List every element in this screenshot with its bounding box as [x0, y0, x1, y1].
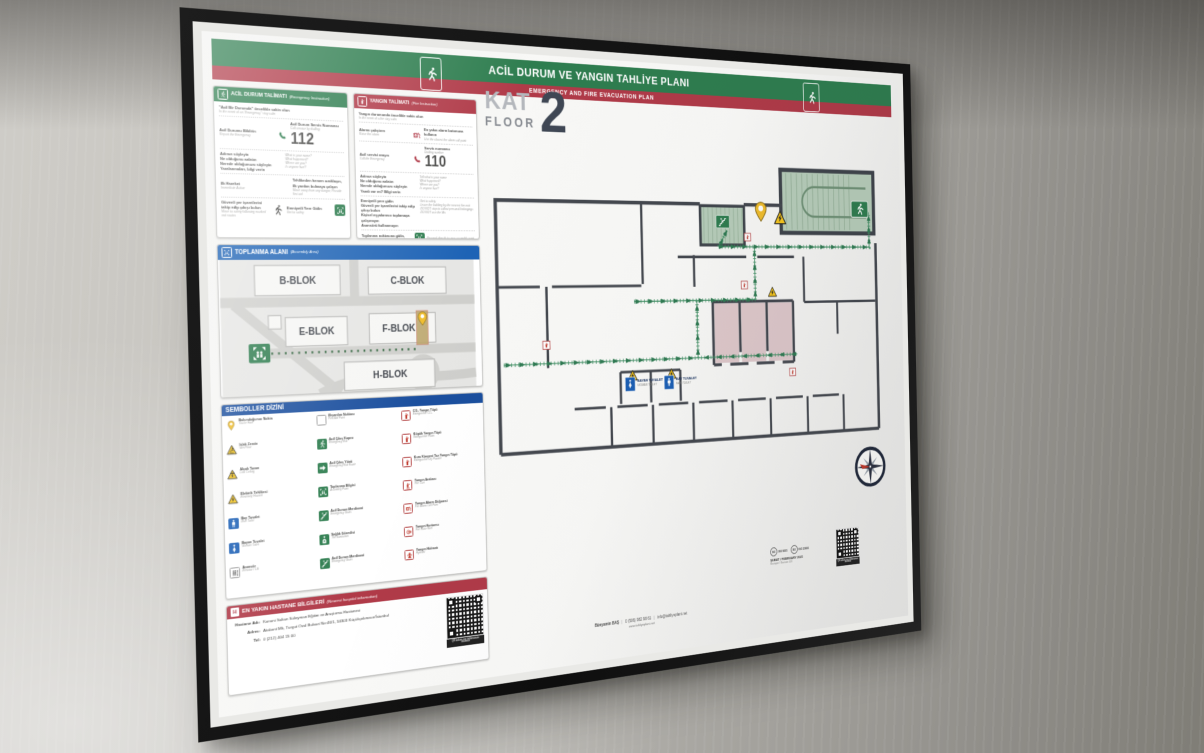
- route-en: Move to safety following marked exit rou…: [221, 210, 268, 219]
- goto-en: Get to safety: [287, 210, 332, 215]
- iso-9001-badge: ISOISO 9001: [770, 546, 787, 557]
- fire-steps-tr: Adınızı söyleyin Ne olduğunu anlatın Ner…: [360, 174, 417, 195]
- assembly-point-icon: [318, 487, 328, 498]
- hospital-tel: 0 (212) 404 15 00: [263, 633, 295, 643]
- svg-text:BAYAN TUVALET: BAYAN TUVALET: [637, 378, 663, 383]
- electricity-hazard-icon: [768, 287, 777, 296]
- svg-text:BAY TUVALET: BAY TUVALET: [676, 376, 697, 381]
- assembly-icon: [221, 247, 232, 258]
- elevator-icon: [230, 567, 241, 579]
- poster-qr-code: [836, 527, 860, 560]
- fire-alarm-button-icon: [404, 503, 414, 514]
- compass-rose: [854, 444, 887, 489]
- hospital-name-label: Hastane Adı:: [232, 620, 260, 629]
- iso-23601-badge: ISOISO 23601: [791, 543, 809, 554]
- block-b-label: B-BLOK: [279, 276, 316, 287]
- poster-qr-block: QR kodunu cep telefonunuza okutunuz: [836, 527, 860, 567]
- assembly-point-icon: [335, 205, 346, 217]
- svg-text:WOMAN TOILET: WOMAN TOILET: [637, 383, 657, 387]
- exit-route-arrow-icon: [317, 463, 327, 474]
- location-pin-icon: [226, 420, 237, 431]
- exit-running-man-icon: [420, 57, 442, 92]
- woman-toilet-icon: BAYAN TUVALET WOMAN TOILET: [625, 376, 663, 392]
- floor-badge: KAT FLOOR 2: [484, 87, 623, 155]
- symbols-legend-panel: SEMBOLLER DİZİNİ Bulunduğunuz NoktaYou'r…: [221, 392, 488, 600]
- block-e-label: E-BLOK: [299, 326, 335, 338]
- emergency-stairs-icon: [716, 215, 730, 228]
- emergency-stairs-icon: [318, 510, 328, 521]
- electricity-hazard-icon: [228, 493, 239, 505]
- away-en: Move away from any danger, Provide first…: [293, 188, 345, 197]
- outer-walls: [495, 198, 879, 455]
- wall-photo-background: ACİL DURUM VE YANGIN TAHLİYE PLANI EMERG…: [0, 0, 1204, 753]
- assembly-title: TOPLANMA ALANI: [235, 249, 288, 256]
- emergency-exit-icon: [851, 201, 868, 217]
- report-en: Report the Emergency: [219, 133, 275, 139]
- hospital-qr-code: [446, 593, 484, 640]
- emergency-instruction-panel: ACİL DURUM TALİMATI (Emergency Instructi…: [213, 85, 352, 239]
- block-f-label: F-BLOK: [382, 323, 416, 334]
- wet-floor-warning-icon: [226, 444, 237, 455]
- fire-number: 110: [424, 154, 446, 170]
- fire-hose-icon: [404, 526, 414, 537]
- man-toilet-icon: [228, 518, 239, 530]
- legend-column-2: İlkyardım NoktasıFirst Aid Point Acil Çı…: [316, 410, 403, 582]
- assembly-area-panel: TOPLANMA ALANI (Assembly Area) B-BLOK C-…: [217, 244, 484, 398]
- certification-block: ISOISO 9001 ISOISO 23601 ŞUBAT / FEBRUAR…: [770, 541, 831, 566]
- extinguisher-foam-icon: [402, 434, 412, 445]
- first-aid-icon: [316, 415, 326, 426]
- emergency-panel-title: ACİL DURUM TALİMATI: [231, 92, 287, 101]
- emergency-steps-en: What is your name? What happened? Where …: [285, 153, 344, 175]
- fire-panel-title: YANGIN TALİMATI: [370, 99, 410, 107]
- hospital-tel-label: Tel:: [232, 637, 260, 646]
- fire-safety-en: Get to safety Leave the building by the …: [420, 199, 475, 228]
- assembly-point-icon: [414, 233, 424, 240]
- inner-walls: [495, 200, 878, 455]
- fire-assembly-tr: Toplanma noktasına gidin, Anons bilgisi …: [362, 233, 412, 240]
- sanitarian-icon: [319, 534, 329, 545]
- fire-hydrant-icon: [405, 550, 415, 561]
- hospital-address-label: Adres:: [232, 628, 260, 637]
- extinguisher-co2-icon: [401, 410, 411, 421]
- designer-website: www.tahliyeplani.net: [449, 599, 811, 653]
- poster-mat: ACİL DURUM VE YANGIN TAHLİYE PLANI EMERG…: [193, 21, 914, 728]
- emergency-stairs-icon: [320, 558, 330, 570]
- floor-number: 2: [539, 83, 567, 141]
- red-crescent-icon: [278, 180, 290, 193]
- phone-icon: [413, 153, 422, 164]
- emergency-number: 112: [290, 131, 314, 148]
- hospital-icon: H: [231, 607, 240, 617]
- emergency-exit-door-icon: [317, 439, 327, 450]
- poster-frame: ACİL DURUM VE YANGIN TAHLİYE PLANI EMERG…: [180, 7, 922, 742]
- fire-panel-title-en: (Fire Instruction): [412, 102, 438, 108]
- woman-toilet-icon: [229, 543, 240, 555]
- block-c-label: C-BLOK: [390, 277, 425, 288]
- designer-credit: Bünyamin BAŞ| 0 (506) 982 98 61| info@ta…: [448, 595, 810, 654]
- assembly-area-map: B-BLOK C-BLOK E-BLOK F-BLOK H-BLOK: [218, 259, 478, 398]
- evacuation-plan-poster: ACİL DURUM VE YANGIN TAHLİYE PLANI EMERG…: [202, 31, 909, 718]
- alarm-button-icon: [412, 129, 421, 140]
- assembly-title-en: (Assembly Area): [291, 250, 319, 254]
- block-h-label: H-BLOK: [373, 370, 408, 382]
- phone-icon: [278, 129, 288, 140]
- exit-running-man-icon: [803, 82, 820, 112]
- you-are-here-pin: [755, 202, 766, 221]
- fire-safety-tr: Emniyetli yere gidin Güvenli yer işaretl…: [361, 198, 418, 228]
- svg-text:MAN TOILET: MAN TOILET: [676, 381, 691, 385]
- fire-instruction-panel: YANGIN TALİMATI (Fire Instruction) Yangı…: [353, 93, 480, 240]
- fire-cart-icon: [403, 480, 413, 491]
- emergency-panel-title-en: (Emergency Instruction): [289, 95, 329, 101]
- assembly-point-icon: [249, 344, 271, 364]
- legend-column-1: Bulunduğunuz NoktaYou're Here Islak Zemi…: [226, 415, 318, 592]
- alarm-use-en: Use the closest fire alarm call point: [424, 137, 473, 143]
- extinguisher-dry-powder-icon: [403, 457, 413, 468]
- first-move-en: Immediate Action: [221, 186, 276, 191]
- route-tr: Güvenli yer işaretlerini takip edip çıkı…: [221, 199, 268, 210]
- low-ceiling-warning-icon: [227, 469, 238, 481]
- flame-icon: [357, 96, 367, 107]
- running-man-icon: [271, 204, 284, 216]
- run-icon: [217, 88, 228, 99]
- legend-column-3: CO₂ Yangın TüpüExtinguisher CO₂ Köpük Ya…: [401, 406, 483, 573]
- fire-steps-en: Tell what is your name What happened? Wh…: [420, 175, 474, 195]
- fire-assembly-en: Proceed directly to your assembly point: [427, 236, 475, 239]
- emergency-steps-tr: Adınızı söyleyin Ne olduğunu anlatın Ner…: [220, 151, 282, 173]
- floor-plan: BAYAN TUVALET WOMAN TOILET BAY TUVALET M…: [487, 149, 881, 467]
